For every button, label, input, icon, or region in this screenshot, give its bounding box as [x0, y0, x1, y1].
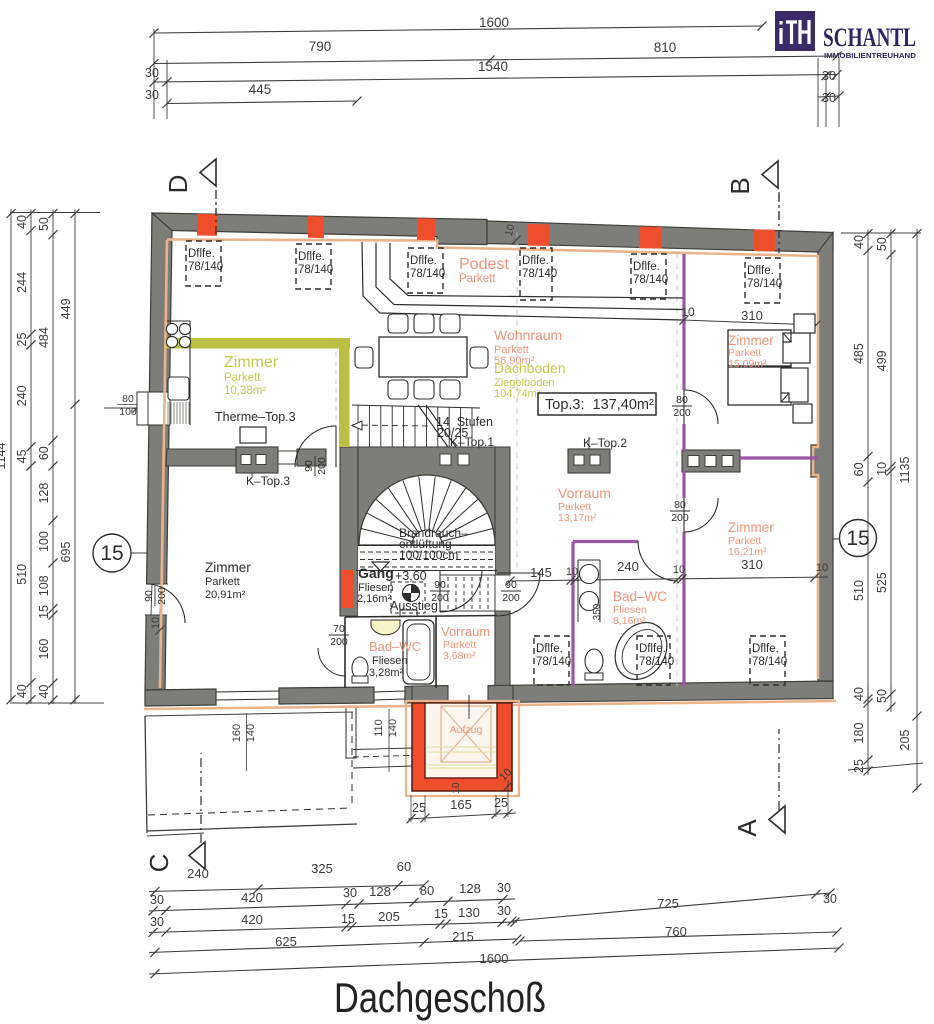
svg-text:30: 30 — [822, 69, 836, 83]
svg-text:449: 449 — [59, 298, 73, 319]
svg-text:160: 160 — [37, 639, 51, 660]
svg-text:Zimmer: Zimmer — [205, 560, 251, 575]
svg-text:695: 695 — [59, 542, 73, 563]
svg-text:Gang: Gang — [358, 565, 394, 581]
svg-text:+3,60: +3,60 — [395, 569, 427, 583]
svg-text:D: D — [163, 175, 193, 194]
svg-text:40: 40 — [15, 215, 29, 229]
svg-text:10: 10 — [150, 617, 162, 629]
svg-text:108: 108 — [37, 575, 51, 596]
svg-text:420: 420 — [241, 890, 263, 905]
svg-text:165: 165 — [450, 797, 472, 812]
svg-text:40: 40 — [852, 687, 866, 701]
svg-text:1600: 1600 — [479, 15, 509, 30]
svg-text:Dflfe.: Dflfe. — [752, 643, 779, 655]
svg-text:78/140: 78/140 — [188, 261, 223, 273]
svg-text:60: 60 — [852, 462, 866, 476]
svg-text:100/100cm: 100/100cm — [399, 548, 458, 562]
svg-text:20,91m²: 20,91m² — [205, 589, 246, 601]
svg-text:78/140: 78/140 — [298, 264, 333, 276]
svg-text:A: A — [732, 819, 762, 837]
svg-text:SCHANTL: SCHANTL — [823, 23, 916, 52]
svg-text:10: 10 — [673, 564, 685, 576]
svg-text:80: 80 — [674, 499, 686, 511]
svg-text:90: 90 — [505, 579, 517, 591]
svg-text:200: 200 — [316, 457, 328, 475]
svg-text:15: 15 — [846, 527, 869, 550]
svg-text:60: 60 — [37, 446, 51, 460]
svg-text:Dflfe.: Dflfe. — [522, 255, 549, 267]
svg-text:Therme–Top.3: Therme–Top.3 — [215, 410, 296, 424]
svg-text:725: 725 — [657, 896, 679, 911]
svg-text:200: 200 — [330, 636, 348, 648]
svg-text:Dflfe.: Dflfe. — [536, 643, 563, 655]
svg-text:1144: 1144 — [0, 443, 8, 470]
svg-text:Vorraum: Vorraum — [558, 485, 611, 501]
svg-text:78/140: 78/140 — [639, 656, 674, 668]
svg-text:325: 325 — [311, 861, 333, 876]
svg-text:140: 140 — [245, 724, 257, 742]
svg-text:128: 128 — [37, 483, 51, 504]
svg-text:30: 30 — [343, 886, 357, 900]
svg-text:30: 30 — [823, 892, 837, 906]
svg-text:25: 25 — [852, 759, 866, 773]
svg-text:Wohnraum: Wohnraum — [494, 327, 562, 343]
svg-text:15: 15 — [341, 912, 355, 926]
svg-text:160: 160 — [231, 724, 243, 742]
svg-text:200: 200 — [502, 592, 520, 604]
svg-text:499: 499 — [875, 350, 889, 371]
svg-text:40: 40 — [15, 684, 29, 698]
svg-text:100: 100 — [37, 531, 51, 552]
svg-text:2,16m²: 2,16m² — [357, 593, 392, 605]
svg-text:15: 15 — [37, 605, 51, 619]
svg-text:10,38m²: 10,38m² — [224, 385, 266, 397]
svg-text:10: 10 — [816, 562, 828, 574]
svg-text:78/140: 78/140 — [410, 268, 445, 280]
svg-text:310: 310 — [741, 308, 763, 323]
svg-text:Bad–WC: Bad–WC — [613, 589, 667, 604]
svg-text:810: 810 — [654, 40, 677, 55]
svg-text:244: 244 — [15, 272, 29, 293]
svg-text:Dachgeschoß: Dachgeschoß — [334, 974, 546, 1021]
svg-text:1135: 1135 — [898, 457, 912, 484]
svg-text:Dflfe.: Dflfe. — [639, 643, 666, 655]
svg-text:128: 128 — [369, 884, 391, 899]
svg-text:90: 90 — [143, 590, 155, 602]
svg-text:78/140: 78/140 — [752, 656, 787, 668]
svg-text:80: 80 — [676, 394, 688, 406]
svg-text:510: 510 — [852, 580, 866, 601]
svg-text:15,09m²: 15,09m² — [728, 358, 767, 370]
svg-text:Fliesen: Fliesen — [372, 655, 407, 667]
svg-text:10: 10 — [566, 566, 578, 578]
svg-text:78/140: 78/140 — [536, 656, 571, 668]
svg-text:Dflfe.: Dflfe. — [747, 265, 774, 277]
svg-text:484: 484 — [37, 327, 51, 348]
svg-text:128: 128 — [459, 881, 481, 896]
svg-text:30: 30 — [497, 904, 511, 918]
svg-text:Dflfe.: Dflfe. — [410, 255, 437, 267]
svg-text:240: 240 — [15, 385, 29, 406]
svg-text:625: 625 — [275, 934, 297, 949]
svg-text:Vorraum: Vorraum — [441, 624, 490, 639]
svg-text:25: 25 — [15, 333, 29, 347]
svg-text:1600: 1600 — [480, 951, 509, 966]
svg-text:78/140: 78/140 — [747, 278, 782, 290]
svg-text:485: 485 — [852, 343, 866, 364]
svg-text:180: 180 — [852, 723, 866, 744]
svg-text:130: 130 — [458, 905, 480, 920]
svg-text:200: 200 — [673, 407, 691, 419]
svg-text:90: 90 — [434, 579, 446, 591]
svg-text:90: 90 — [303, 460, 315, 472]
svg-text:8,16m²: 8,16m² — [613, 615, 646, 627]
svg-text:445: 445 — [249, 82, 272, 97]
svg-text:78/140: 78/140 — [522, 268, 557, 280]
svg-text:10: 10 — [875, 462, 889, 476]
svg-text:Dflfe.: Dflfe. — [188, 248, 215, 260]
svg-text:3,28m²: 3,28m² — [369, 667, 404, 679]
svg-text:110: 110 — [373, 719, 385, 737]
svg-text:Bad–WC: Bad–WC — [369, 639, 421, 654]
svg-text:145: 145 — [530, 565, 552, 580]
svg-text:15: 15 — [100, 542, 123, 565]
svg-text:C: C — [144, 854, 174, 873]
svg-text:Dflfe.: Dflfe. — [633, 261, 660, 273]
svg-text:200: 200 — [671, 512, 689, 524]
svg-text:16,21m²: 16,21m² — [728, 546, 767, 558]
svg-text:40: 40 — [852, 235, 866, 249]
svg-text:K–Top.2: K–Top.2 — [583, 436, 627, 450]
svg-text:200: 200 — [156, 587, 168, 605]
svg-text:140: 140 — [387, 719, 399, 737]
svg-text:K–Top.1: K–Top.1 — [450, 435, 494, 449]
svg-text:Aufzug: Aufzug — [450, 724, 483, 736]
svg-text:K–Top.3: K–Top.3 — [246, 474, 290, 488]
svg-text:760: 760 — [665, 924, 687, 939]
svg-text:B: B — [725, 177, 755, 194]
svg-text:Dflfe.: Dflfe. — [298, 251, 325, 263]
svg-text:10: 10 — [681, 305, 695, 319]
svg-text:30: 30 — [822, 91, 836, 105]
svg-text:240: 240 — [617, 559, 639, 574]
svg-text:205: 205 — [378, 909, 400, 924]
svg-text:15: 15 — [434, 907, 448, 921]
svg-text:Parkett: Parkett — [459, 273, 496, 285]
svg-text:60: 60 — [397, 859, 411, 874]
svg-text:Parkett: Parkett — [205, 576, 240, 588]
svg-text:205: 205 — [898, 730, 912, 751]
svg-text:Top.3: 137,40m²: Top.3: 137,40m² — [545, 397, 654, 413]
svg-text:30: 30 — [145, 88, 159, 102]
svg-text:40: 40 — [37, 685, 51, 699]
svg-text:310: 310 — [741, 557, 763, 572]
svg-text:10: 10 — [451, 782, 462, 794]
svg-text:45: 45 — [15, 449, 29, 463]
svg-text:Zimmer: Zimmer — [728, 520, 774, 535]
svg-text:30: 30 — [145, 66, 159, 80]
svg-text:200: 200 — [431, 592, 449, 604]
svg-text:80: 80 — [420, 883, 434, 898]
svg-text:100: 100 — [119, 406, 137, 418]
svg-text:240: 240 — [187, 866, 209, 881]
svg-text:30: 30 — [150, 893, 164, 907]
svg-text:70: 70 — [333, 623, 345, 635]
svg-text:25: 25 — [412, 801, 426, 815]
svg-text:Dachboden: Dachboden — [494, 360, 566, 376]
svg-text:50: 50 — [875, 689, 889, 703]
svg-text:510: 510 — [15, 564, 29, 585]
svg-text:790: 790 — [309, 39, 332, 54]
svg-text:80: 80 — [122, 393, 134, 405]
svg-text:Parkett: Parkett — [224, 372, 261, 384]
svg-text:3,68m²: 3,68m² — [443, 650, 476, 662]
svg-text:350: 350 — [592, 603, 603, 620]
svg-text:50: 50 — [37, 217, 51, 231]
svg-text:13,17m²: 13,17m² — [558, 512, 597, 524]
svg-text:Podest: Podest — [459, 256, 509, 273]
svg-text:30: 30 — [150, 915, 164, 929]
svg-text:420: 420 — [241, 912, 263, 927]
svg-text:78/140: 78/140 — [633, 274, 668, 286]
svg-text:525: 525 — [875, 572, 889, 593]
svg-text:104,74m²: 104,74m² — [494, 388, 541, 400]
svg-text:30: 30 — [497, 881, 511, 895]
svg-text:50: 50 — [875, 237, 889, 251]
svg-text:Zimmer: Zimmer — [224, 354, 279, 371]
svg-text:1540: 1540 — [478, 59, 508, 74]
svg-text:215: 215 — [452, 929, 474, 944]
svg-text:Zimmer: Zimmer — [728, 333, 774, 348]
